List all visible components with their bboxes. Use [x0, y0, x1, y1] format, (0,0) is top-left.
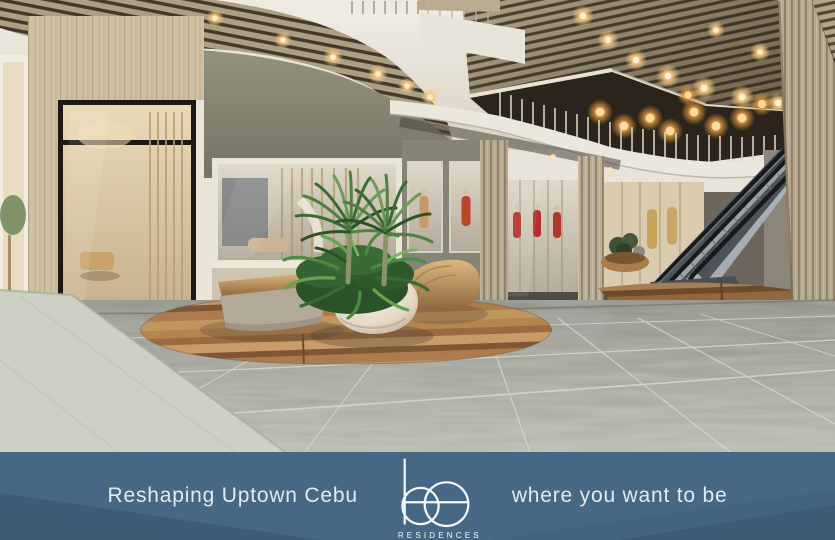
tagline-right: where you want to be	[512, 484, 728, 508]
tagline-left: Reshaping Uptown Cebu	[108, 484, 358, 508]
fluted-column	[578, 156, 604, 324]
entrance-door-left	[0, 55, 28, 313]
be-logo-mark	[401, 457, 479, 529]
storefront-mannequins	[508, 180, 578, 306]
glass-door-black-frame	[58, 100, 196, 314]
lobby-render	[0, 0, 835, 452]
promo-slide: Reshaping Uptown Cebu be RESIDENCES wher…	[0, 0, 835, 540]
travertine-pier	[28, 16, 204, 314]
be-logo: be RESIDENCES	[398, 457, 482, 540]
fluted-column	[480, 140, 508, 320]
logo-subtext: RESIDENCES	[398, 531, 482, 540]
banner: Reshaping Uptown Cebu be RESIDENCES wher…	[0, 452, 835, 540]
